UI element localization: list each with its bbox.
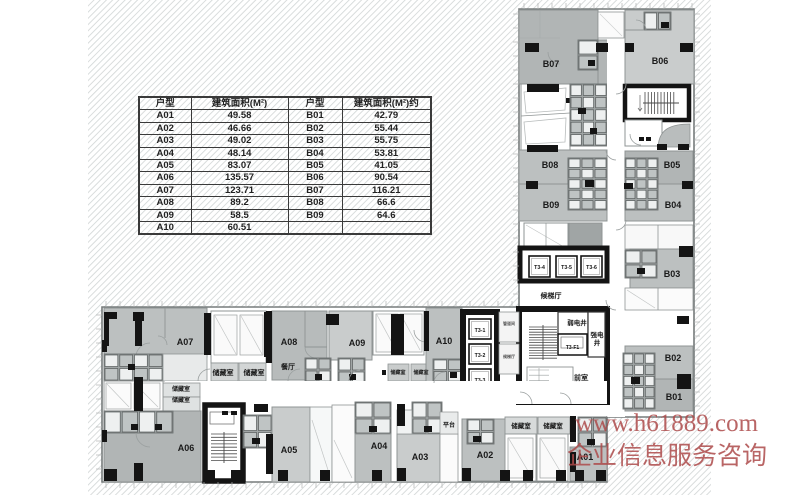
svg-text:A06: A06 bbox=[178, 443, 195, 453]
svg-text:T3-1: T3-1 bbox=[475, 328, 486, 334]
svg-text:储藏室: 储藏室 bbox=[390, 369, 405, 376]
svg-text:平台: 平台 bbox=[443, 421, 455, 429]
svg-text:B06: B06 bbox=[652, 56, 669, 66]
svg-text:A03: A03 bbox=[412, 452, 429, 462]
svg-text:储藏室: 储藏室 bbox=[171, 396, 190, 404]
svg-text:储藏室: 储藏室 bbox=[243, 368, 265, 377]
svg-text:A08: A08 bbox=[281, 337, 298, 347]
svg-text:B08: B08 bbox=[542, 160, 559, 170]
svg-text:A04: A04 bbox=[371, 441, 388, 451]
svg-text:前室: 前室 bbox=[574, 373, 588, 382]
svg-text:弱电井: 弱电井 bbox=[567, 318, 587, 327]
svg-text:B04: B04 bbox=[665, 200, 682, 210]
svg-text:T3-F1: T3-F1 bbox=[566, 345, 580, 351]
svg-text:A07: A07 bbox=[177, 337, 194, 347]
svg-text:储藏室: 储藏室 bbox=[542, 421, 563, 430]
svg-text:强电: 强电 bbox=[591, 330, 605, 339]
svg-text:B09: B09 bbox=[543, 200, 560, 210]
svg-text:B01: B01 bbox=[666, 392, 683, 402]
svg-text:A02: A02 bbox=[477, 450, 494, 460]
svg-text:B03: B03 bbox=[664, 269, 681, 279]
svg-text:T3-5: T3-5 bbox=[561, 265, 572, 271]
svg-text:储藏室: 储藏室 bbox=[413, 369, 428, 376]
svg-text:管道间: 管道间 bbox=[503, 320, 515, 326]
svg-text:井: 井 bbox=[594, 338, 601, 347]
svg-text:候梯厅: 候梯厅 bbox=[541, 291, 562, 300]
svg-text:A10: A10 bbox=[436, 336, 453, 346]
svg-text:T3-6: T3-6 bbox=[586, 265, 597, 271]
svg-text:B05: B05 bbox=[664, 160, 681, 170]
svg-text:储藏室: 储藏室 bbox=[510, 421, 531, 430]
svg-text:A09: A09 bbox=[349, 338, 366, 348]
svg-text:候梯厅: 候梯厅 bbox=[503, 353, 515, 359]
svg-text:T3-4: T3-4 bbox=[534, 265, 545, 271]
svg-text:储藏室: 储藏室 bbox=[212, 368, 234, 377]
svg-text:B02: B02 bbox=[665, 353, 682, 363]
svg-text:B07: B07 bbox=[543, 59, 560, 69]
svg-text:餐厅: 餐厅 bbox=[280, 362, 295, 371]
svg-text:A05: A05 bbox=[281, 445, 298, 455]
svg-text:储藏室: 储藏室 bbox=[171, 385, 190, 393]
svg-text:T3-2: T3-2 bbox=[475, 353, 486, 359]
